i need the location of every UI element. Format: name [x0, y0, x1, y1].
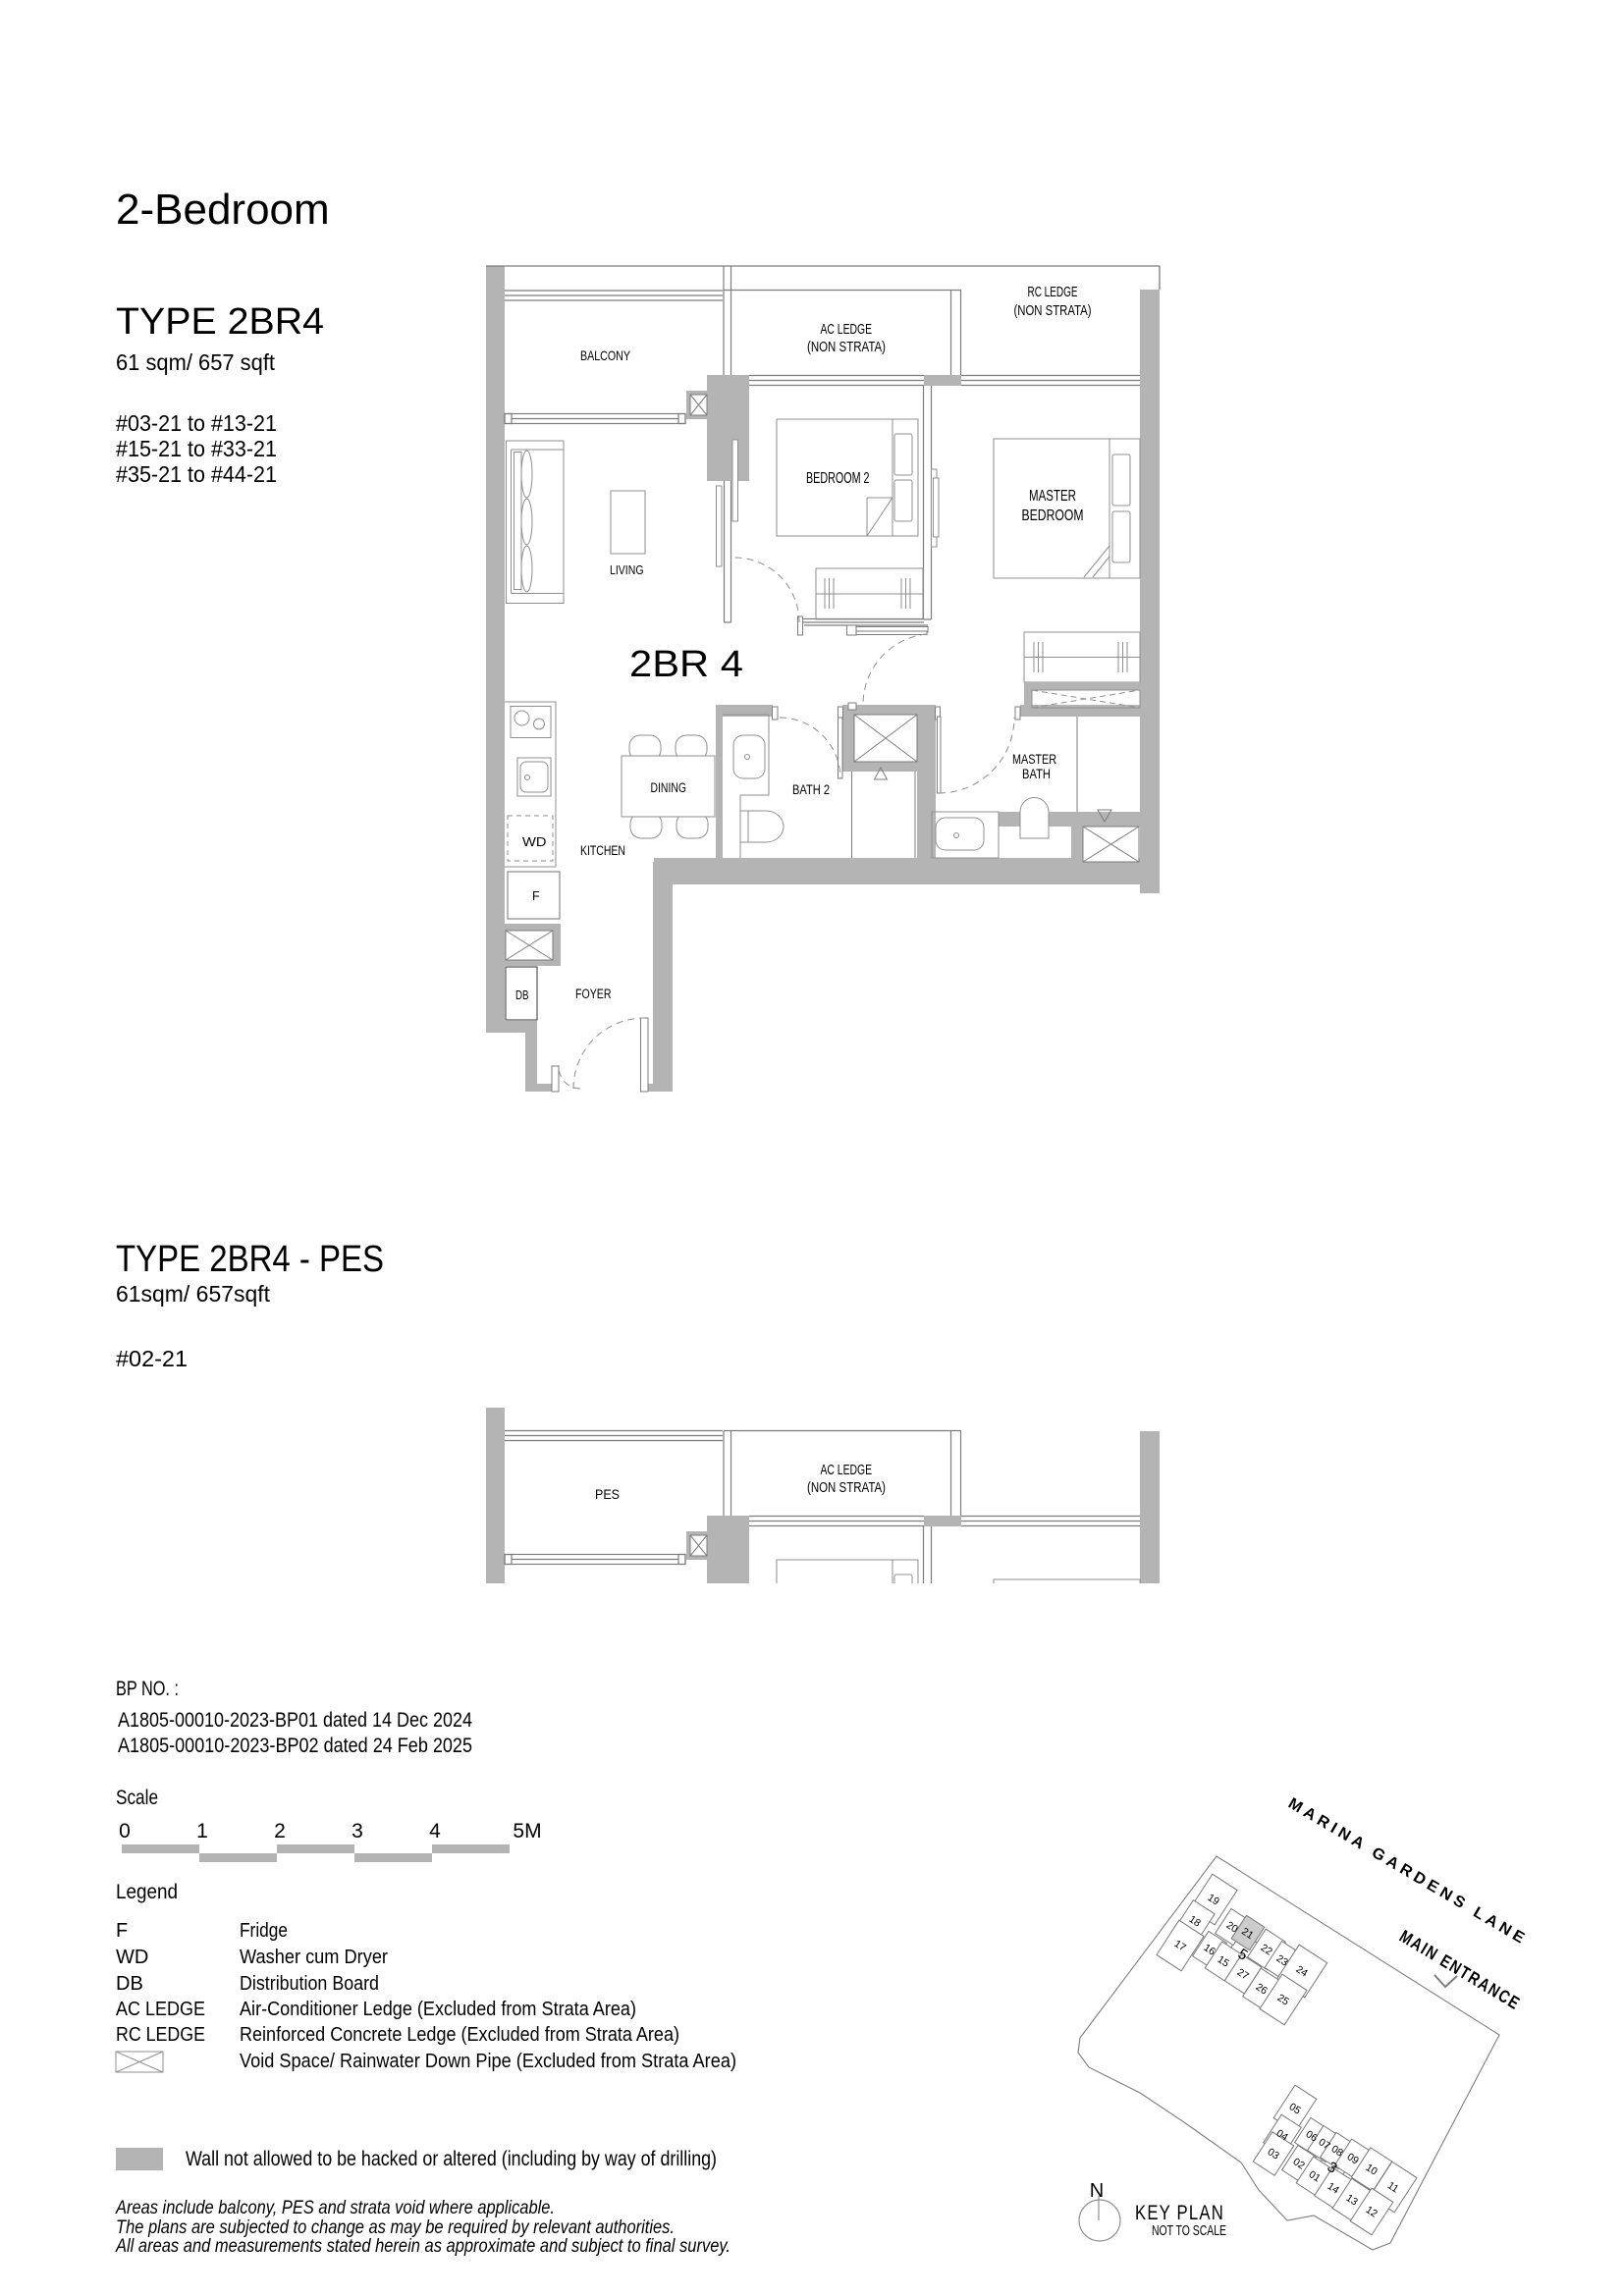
- svg-text:N: N: [1090, 2180, 1104, 2202]
- svg-text:Scale: Scale: [116, 1787, 158, 1809]
- svg-text:AC LEDGE: AC LEDGE: [821, 321, 873, 338]
- svg-text:A1805-00010-2023-BP02 dated 24: A1805-00010-2023-BP02 dated 24 Feb 2025: [118, 1735, 472, 1757]
- svg-text:BALCONY: BALCONY: [580, 347, 630, 363]
- svg-text:0: 0: [119, 1820, 131, 1842]
- svg-text:DB: DB: [116, 1973, 143, 1995]
- svg-text:TYPE 2BR4: TYPE 2BR4: [116, 301, 324, 343]
- svg-text:2-Bedroom: 2-Bedroom: [116, 186, 330, 234]
- svg-text:FOYER: FOYER: [575, 987, 612, 1001]
- svg-text:DB: DB: [515, 988, 529, 1002]
- svg-text:RC LEDGE: RC LEDGE: [1028, 284, 1078, 300]
- svg-text:Fridge: Fridge: [240, 1920, 288, 1942]
- svg-text:5M: 5M: [513, 1820, 541, 1842]
- svg-text:TYPE 2BR4 - PES: TYPE 2BR4 - PES: [116, 1239, 384, 1280]
- svg-text:BEDROOM: BEDROOM: [1022, 507, 1084, 524]
- svg-text:#02-21: #02-21: [116, 1346, 188, 1371]
- svg-text:#15-21 to #33-21: #15-21 to #33-21: [116, 436, 277, 461]
- svg-text:#03-21 to #13-21: #03-21 to #13-21: [116, 410, 277, 436]
- svg-text:Legend: Legend: [116, 1881, 178, 1903]
- svg-text:Void Space/ Rainwater Down Pip: Void Space/ Rainwater Down Pipe (Exclude…: [240, 2051, 736, 2072]
- svg-text:BEDROOM 2: BEDROOM 2: [806, 470, 870, 487]
- svg-text:61sqm/ 657sqft: 61sqm/ 657sqft: [116, 1281, 271, 1307]
- svg-text:NOT TO SCALE: NOT TO SCALE: [1152, 2222, 1226, 2239]
- svg-text:AC LEDGE: AC LEDGE: [821, 1462, 873, 1478]
- svg-text:All areas and measurements sta: All areas and measurements stated herein…: [115, 2236, 730, 2257]
- svg-text:4: 4: [429, 1820, 441, 1842]
- svg-text:(NON STRATA): (NON STRATA): [1014, 302, 1092, 319]
- svg-text:Washer cum Dryer: Washer cum Dryer: [240, 1947, 388, 1968]
- svg-text:AC LEDGE: AC LEDGE: [116, 1999, 205, 2020]
- svg-text:PES: PES: [595, 1486, 620, 1502]
- svg-text:BATH: BATH: [1022, 767, 1051, 781]
- svg-text:MASTER: MASTER: [1029, 488, 1076, 505]
- svg-text:BP NO. :: BP NO. :: [116, 1678, 179, 1700]
- svg-text:WD: WD: [522, 835, 547, 849]
- svg-text:WD: WD: [116, 1947, 148, 1968]
- svg-text:1: 1: [196, 1820, 208, 1842]
- svg-text:#35-21 to #44-21: #35-21 to #44-21: [116, 461, 277, 487]
- svg-text:F: F: [532, 889, 540, 903]
- svg-text:DINING: DINING: [651, 779, 687, 795]
- svg-text:(NON STRATA): (NON STRATA): [807, 1479, 886, 1496]
- svg-text:Wall not allowed to be hacked: Wall not allowed to be hacked or altered…: [186, 2148, 717, 2170]
- svg-text:KEY PLAN: KEY PLAN: [1135, 2202, 1224, 2224]
- svg-text:2: 2: [274, 1820, 286, 1842]
- svg-text:MASTER: MASTER: [1012, 752, 1056, 767]
- svg-text:F: F: [116, 1920, 128, 1942]
- svg-text:Reinforced Concrete Ledge (Exc: Reinforced Concrete Ledge (Excluded from…: [240, 2024, 679, 2046]
- svg-text:LIVING: LIVING: [610, 562, 644, 577]
- svg-text:A1805-00010-2023-BP01 dated 14: A1805-00010-2023-BP01 dated 14 Dec 2024: [118, 1709, 472, 1732]
- svg-text:BATH 2: BATH 2: [792, 782, 830, 797]
- svg-text:Areas include balcony, PES and: Areas include balcony, PES and strata vo…: [115, 2198, 555, 2218]
- svg-text:Distribution Board: Distribution Board: [240, 1973, 379, 1995]
- svg-text:3: 3: [352, 1820, 363, 1842]
- svg-text:2BR 4: 2BR 4: [629, 644, 743, 685]
- svg-text:RC LEDGE: RC LEDGE: [116, 2024, 205, 2046]
- svg-text:KITCHEN: KITCHEN: [580, 843, 625, 858]
- svg-text:(NON STRATA): (NON STRATA): [807, 339, 886, 355]
- svg-text:Air-Conditioner Ledge (Exclude: Air-Conditioner Ledge (Excluded from Str…: [240, 1999, 636, 2020]
- svg-text:61 sqm/ 657 sqft: 61 sqm/ 657 sqft: [116, 349, 276, 375]
- svg-text:The plans are subjected to cha: The plans are subjected to change as may…: [116, 2217, 675, 2238]
